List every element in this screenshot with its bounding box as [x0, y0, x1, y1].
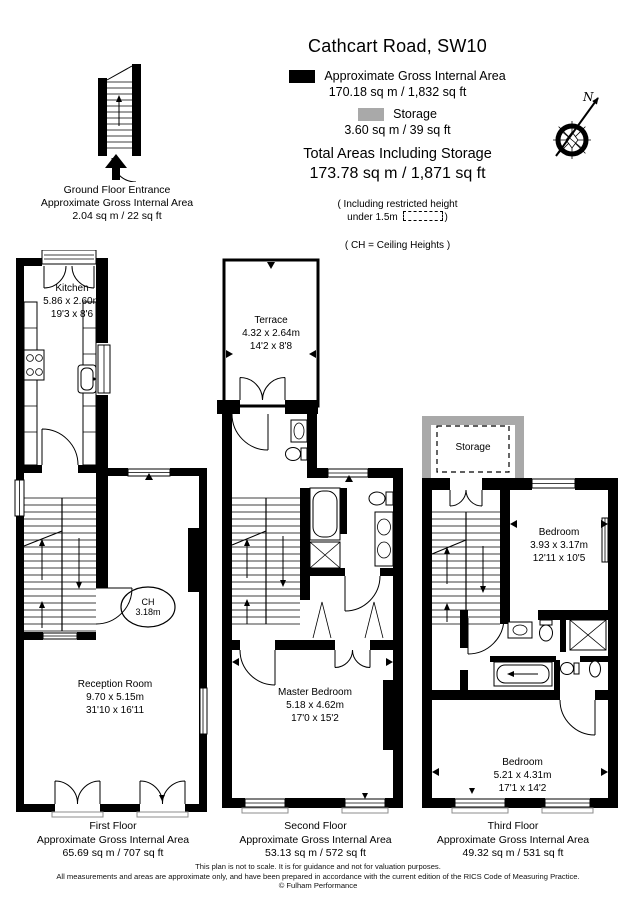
storage-swatch — [358, 108, 384, 121]
first-floor-caption: First Floor Approximate Gross Internal A… — [8, 820, 218, 861]
storage-value: 3.60 sq m / 39 sq ft — [255, 122, 540, 138]
area-legend: Approximate Gross Internal Area 170.18 s… — [255, 66, 540, 138]
compass-rose — [546, 86, 616, 168]
compass-north-label: N — [583, 90, 601, 104]
page-title: Cathcart Road, SW10 — [255, 36, 540, 57]
sf-staircase — [232, 498, 300, 624]
sf-walls — [217, 400, 403, 808]
entrance-staircase — [107, 66, 132, 148]
ff-stove — [24, 350, 44, 380]
restricted-height-note: ( Including restricted height under 1.5m… — [255, 198, 540, 224]
floorplan-page: Cathcart Road, SW10 Approximate Gross In… — [0, 0, 636, 900]
tf-storage-doors — [450, 490, 482, 506]
rear-bedroom-label: Bedroom 3.93 x 3.17m 12'11 x 10'5 — [484, 526, 634, 565]
entrance-caption: Ground Floor Entrance Approximate Gross … — [8, 184, 226, 223]
gia-swatch — [289, 70, 315, 83]
gia-value: 170.18 sq m / 1,832 sq ft — [255, 84, 540, 100]
sf-closet-doors — [313, 602, 383, 638]
master-bedroom-label: Master Bedroom 5.18 x 4.62m 17'0 x 15'2 — [240, 686, 390, 725]
entrance-arrow — [105, 154, 127, 180]
sf-bathroom-fixtures — [310, 488, 393, 568]
third-floor-caption: Third Floor Approximate Gross Internal A… — [408, 820, 618, 861]
terrace-label: Terrace 4.32 x 2.64m 14'2 x 8'8 — [221, 314, 321, 353]
kitchen-label: Kitchen 5.86 x 2.60m 19'3 x 8'6 — [17, 282, 127, 321]
entrance-plan — [86, 64, 156, 182]
second-floor-caption: Second Floor Approximate Gross Internal … — [212, 820, 419, 861]
sf-dimension-markers — [232, 658, 393, 666]
ff-walls — [16, 258, 207, 812]
sf-wc-fixtures — [286, 420, 308, 461]
first-floor-plan — [12, 250, 214, 818]
ceiling-height-label: CH 3.18m — [133, 597, 163, 617]
totals-value: 173.78 sq m / 1,871 sq ft — [255, 165, 540, 183]
storage-label: Storage — [433, 441, 513, 454]
legend-storage-row: Storage — [255, 106, 540, 122]
disclaimer: This plan is not to scale. It is for gui… — [0, 862, 636, 891]
front-bedroom-label: Bedroom 5.21 x 4.31m 17'1 x 14'2 — [445, 756, 600, 795]
ff-windows — [15, 345, 207, 734]
ff-staircase — [24, 498, 96, 631]
reception-room-label: Reception Room 9.70 x 5.15m 31'10 x 16'1… — [40, 678, 190, 717]
storage-label: Storage — [393, 106, 437, 122]
legend-gia-row: Approximate Gross Internal Area — [255, 68, 540, 84]
totals-block: Total Areas Including Storage 173.78 sq … — [255, 146, 540, 183]
tf-bathroom-fixtures — [494, 620, 606, 686]
gia-label: Approximate Gross Internal Area — [324, 68, 505, 84]
totals-label: Total Areas Including Storage — [255, 146, 540, 162]
restricted-height-dashbox — [403, 211, 443, 221]
ff-kitchen-sink — [78, 365, 96, 393]
